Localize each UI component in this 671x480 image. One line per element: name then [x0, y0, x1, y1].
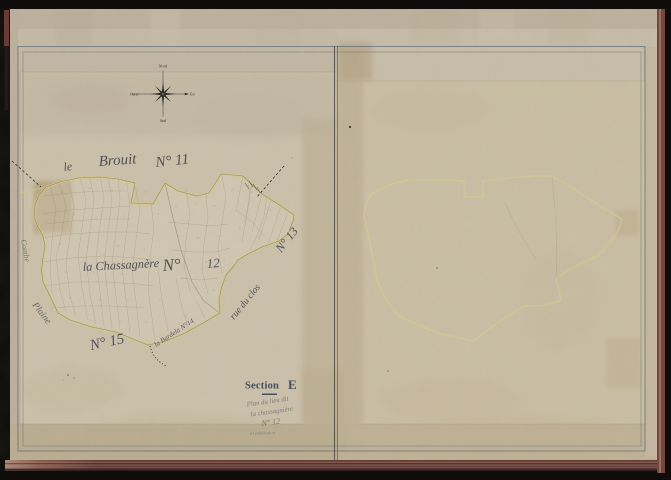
svg-text:12: 12: [206, 255, 221, 271]
svg-text:Section: Section: [245, 381, 279, 392]
svg-text:Ouest: Ouest: [130, 93, 139, 97]
svg-text:Sud: Sud: [160, 118, 167, 123]
svg-text:Brouit: Brouit: [98, 151, 138, 170]
svg-text:E: E: [288, 377, 297, 392]
svg-text:N°: N°: [161, 255, 182, 275]
svg-text:Nord: Nord: [158, 64, 168, 69]
